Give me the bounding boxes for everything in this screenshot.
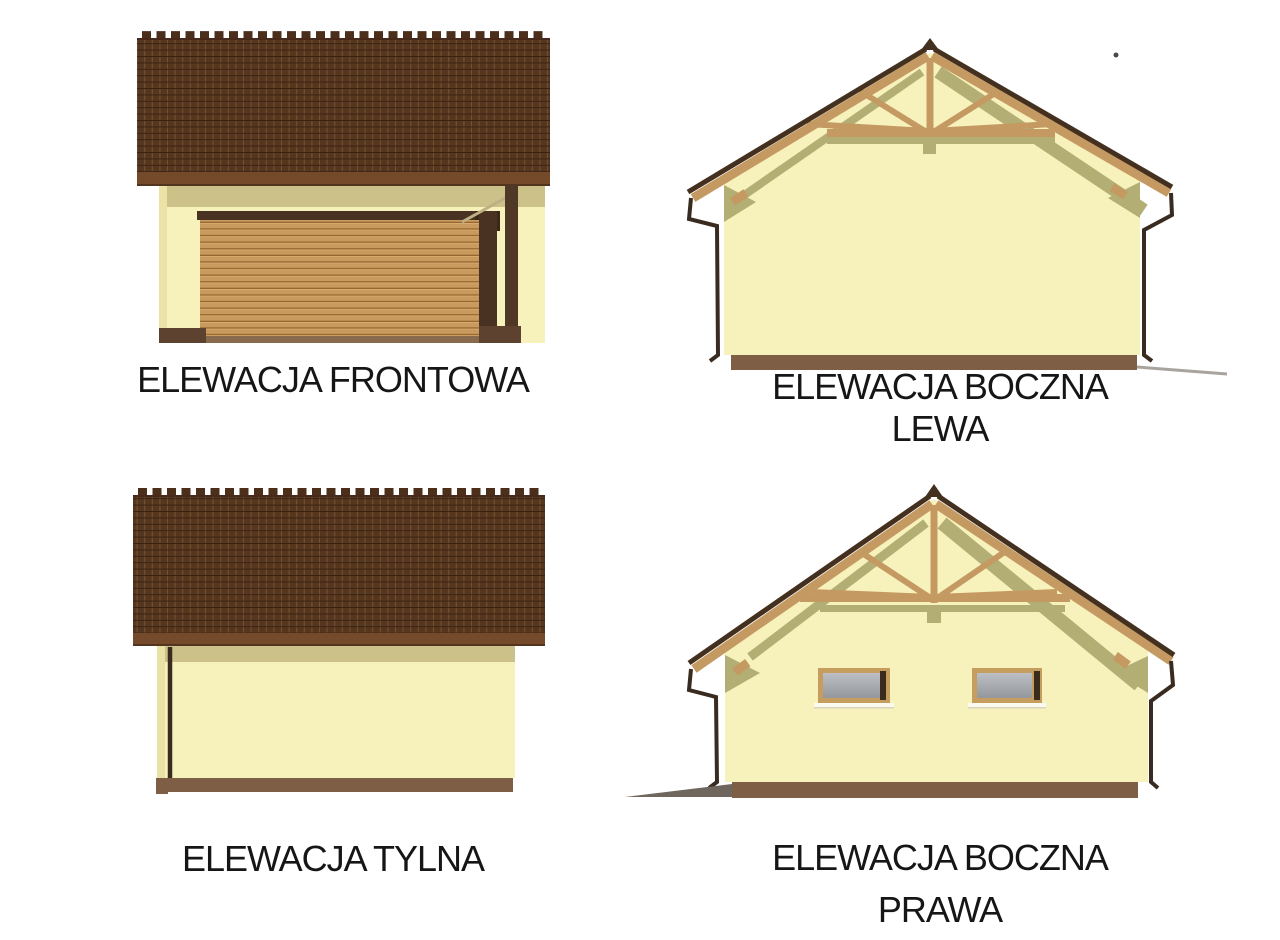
foundation-block-left [159,328,206,343]
caption-front-elevation: ELEWACJA FRONTOWA [118,359,548,401]
left-side-elevation-svg [655,30,1245,380]
window-sill [814,703,894,707]
window-left [814,668,894,709]
caption-text: ELEWACJA TYLNA [182,838,484,879]
wall [165,646,515,778]
foundation-block-right [479,326,521,343]
corner-post [505,185,518,343]
caption-right-side-elevation: ELEWACJA BOCZNA PRAWA [660,832,1220,936]
king-post-shadow [923,137,936,154]
rear-roof [133,492,545,647]
caption-left-side-elevation: ELEWACJA BOCZNA LEWA [660,366,1220,450]
foundation [162,778,513,792]
speck [1114,53,1119,58]
eave-fascia [137,172,550,186]
window-glass [823,673,880,698]
window-glass [977,673,1032,698]
door-frame-right [479,211,497,339]
door-panel [200,220,479,338]
corner-board [157,646,165,778]
caption-text-line2: PRAWA [878,889,1002,930]
caption-rear-elevation: ELEWACJA TYLNA [118,838,548,880]
left-side-elevation-drawing [655,30,1245,380]
ground-strip [205,336,479,343]
ridge-cap [921,38,939,50]
window-right [968,668,1046,709]
ground-shadow [625,784,732,797]
front-elevation-svg [130,25,560,350]
caption-text: ELEWACJA FRONTOWA [137,359,529,400]
shadow-band [159,186,545,207]
downspout-right [1151,661,1173,788]
caption-text: ELEWACJA BOCZNA [772,837,1108,878]
rear-wall [157,646,515,778]
king-post-shadow [927,605,941,623]
roof-tiles [133,495,545,633]
downspout-right [1144,193,1172,361]
caption-text-line2: LEWA [892,408,989,449]
right-side-elevation-svg [615,475,1255,805]
window-sill [968,703,1046,707]
downspout-left [689,669,717,788]
shadow-band [165,646,515,662]
elevation-sheet: ELEWACJA FRONTOWA [0,0,1280,940]
corner-board [159,186,167,343]
caption-text: ELEWACJA BOCZNA [772,366,1108,407]
rear-elevation-svg [130,480,560,800]
front-roof [137,35,550,186]
rear-elevation-drawing [130,480,560,800]
door-frame-top [197,211,500,220]
downspout-left [689,198,718,361]
front-elevation-drawing [130,25,560,350]
foundation [732,782,1138,798]
right-side-elevation-drawing [615,475,1255,805]
roof-tiles [137,38,550,172]
ridge-cap [925,484,943,497]
